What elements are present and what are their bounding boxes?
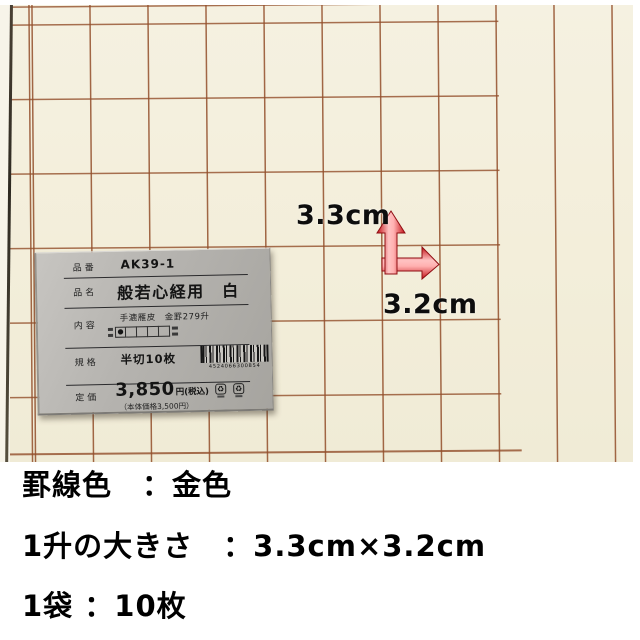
price: 3,850 円(税込) <box>115 380 209 400</box>
strip-cell <box>148 326 159 337</box>
item-name-value: 般若心経用 白 <box>117 277 240 304</box>
field-label-contents: 内容 <box>74 318 98 332</box>
contents-check-strip: ● <box>108 325 178 337</box>
field-label-format: 規格 <box>74 355 98 369</box>
vertical-dimension-label: 3.3cm <box>296 202 378 229</box>
spec-line-ruled-color: 罫線色 ：金色 <box>22 470 232 502</box>
recycle-mark-caption <box>235 395 242 397</box>
spec-line-cell-size: 1升の大きさ ：3.3cm×3.2cm <box>22 531 486 563</box>
barcode-bars-icon <box>200 345 268 363</box>
strip-left-mark <box>108 328 113 337</box>
recycle-symbol-icon: ♻ <box>215 384 226 395</box>
field-label-item-number: 品番 <box>72 260 96 274</box>
price-unit: 円(税込) <box>176 385 210 399</box>
card-divider <box>64 304 248 309</box>
recycle-symbol-icon: ♻ <box>233 383 244 394</box>
field-label-price: 定価 <box>75 390 99 404</box>
strip-cells: ● <box>115 326 170 338</box>
recycle-mark-caption <box>217 396 224 398</box>
strip-cell <box>159 326 170 337</box>
product-listing-image: 3.3cm 3.2cm 品番 品名 内容 規格 定価 AK39-1 般若心経用 … <box>0 0 640 640</box>
strip-cell <box>126 326 137 337</box>
strip-cell <box>137 326 148 337</box>
format-value: 半切10枚 <box>120 351 176 368</box>
barcode-number: 4524066300854 <box>201 363 269 370</box>
recycle-mark-icon: ♻ <box>215 384 226 398</box>
price-amount: 3,850 <box>115 381 175 400</box>
recycle-mark-icon: ♻ <box>233 383 244 397</box>
horizontal-dimension-label: 3.2cm <box>383 291 477 318</box>
strip-right-mark <box>172 326 178 335</box>
product-label-card: 品番 品名 内容 規格 定価 AK39-1 般若心経用 白 手漉雁皮 金罫279… <box>34 248 273 416</box>
recycle-marks: ♻ ♻ <box>215 383 244 398</box>
barcode: 4524066300854 <box>200 345 268 370</box>
price-note: （本体価格3,500円） <box>119 400 193 413</box>
contents-value: 手漉雁皮 金罫279升 <box>120 310 210 324</box>
field-label-item-name: 品名 <box>73 285 97 299</box>
item-number-value: AK39-1 <box>120 257 175 272</box>
spec-line-sheets-per-bag: 1袋 ：10枚 <box>22 591 187 623</box>
strip-cell-filled: ● <box>115 327 126 338</box>
